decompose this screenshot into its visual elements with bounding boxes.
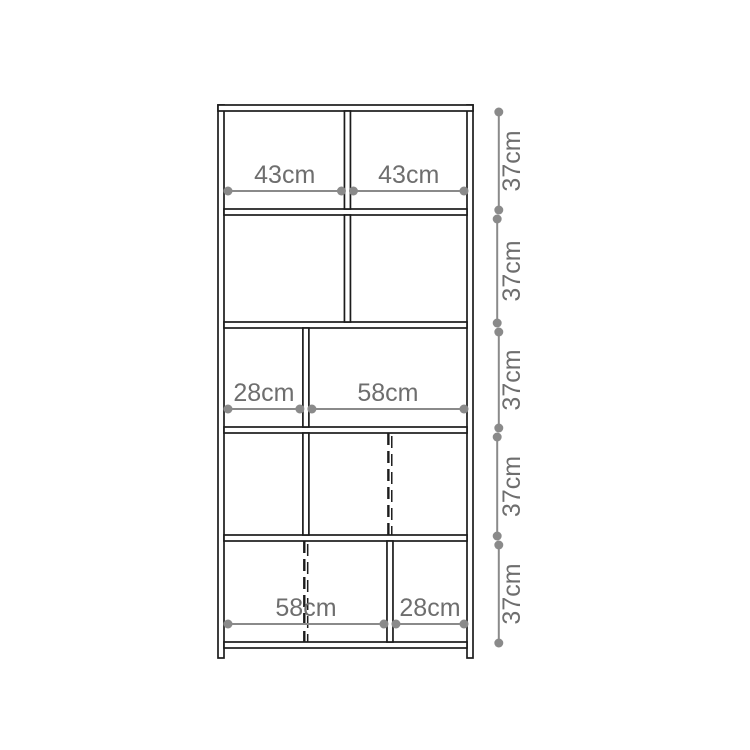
cabinet-dimension-diagram: 43cm43cm28cm58cm58cm28cm 37cm37cm37cm37c… (0, 0, 750, 750)
row-4-divider (303, 433, 309, 535)
diagram-canvas: 43cm43cm28cm58cm58cm28cm 37cm37cm37cm37c… (0, 0, 750, 750)
row-5-right-width-label: 28cm (399, 594, 460, 622)
row-3-right-width-dim-dot-start (307, 405, 316, 414)
shelf-3 (224, 427, 467, 433)
side-panel-left (218, 105, 224, 658)
row-3-height-label: 37cm (498, 349, 526, 410)
row-1-right-width-dim-dot-end (460, 187, 469, 196)
row-5-height-dim-dot-top (494, 541, 503, 550)
row-2-divider (344, 215, 350, 322)
shelf-2 (224, 322, 467, 328)
shelf-4 (224, 535, 467, 541)
top-panel (218, 105, 473, 111)
row-1-divider (344, 111, 350, 209)
row-3-left-width-dim-dot-end (295, 405, 304, 414)
row-3-left-width-label: 28cm (233, 379, 294, 407)
row-3-divider (303, 328, 309, 427)
row-1-right-width-label: 43cm (378, 161, 439, 189)
row-5-right-width-dim-dot-end (460, 620, 469, 629)
row-5-height-label: 37cm (498, 563, 526, 624)
row-1-height-label: 37cm (498, 130, 526, 191)
row-2-height-dim-dot-bottom (493, 319, 502, 328)
row-4-height-dim-dot-bottom (493, 532, 502, 541)
row-1-height-dim-dot-top (494, 108, 503, 117)
shelf-1 (224, 209, 467, 215)
row-1-height-dim-dot-bottom (494, 206, 503, 215)
row-3-height-dim-dot-top (494, 328, 503, 337)
height-dimensions: 37cm37cm37cm37cm37cm (493, 108, 526, 648)
row-3-right-width-label: 58cm (357, 379, 418, 407)
row-4-height-label: 37cm (498, 456, 526, 517)
row-4-height-dim-dot-top (493, 433, 502, 442)
row-1-right-width-dim-dot-start (349, 187, 358, 196)
row-5-left-width-label: 58cm (275, 594, 336, 622)
row-3-left-width-dim-dot-start (224, 405, 233, 414)
row-5-left-width-dim-dot-end (379, 620, 388, 629)
row-3-right-width-dim-dot-end (460, 405, 469, 414)
row-1-left-width-dim-dot-start (224, 187, 233, 196)
row-1-left-width-label: 43cm (254, 161, 315, 189)
row-1-left-width-dim-dot-end (337, 187, 346, 196)
row-5-divider (387, 541, 393, 642)
bottom-shelf (224, 642, 467, 648)
row-3-height-dim-dot-bottom (494, 424, 503, 433)
row-5-height-dim-dot-bottom (494, 639, 503, 648)
row-2-height-dim-dot-top (493, 215, 502, 224)
row-2-height-label: 37cm (498, 240, 526, 301)
row-5-left-width-dim-dot-start (224, 620, 233, 629)
side-panel-right (467, 105, 473, 658)
